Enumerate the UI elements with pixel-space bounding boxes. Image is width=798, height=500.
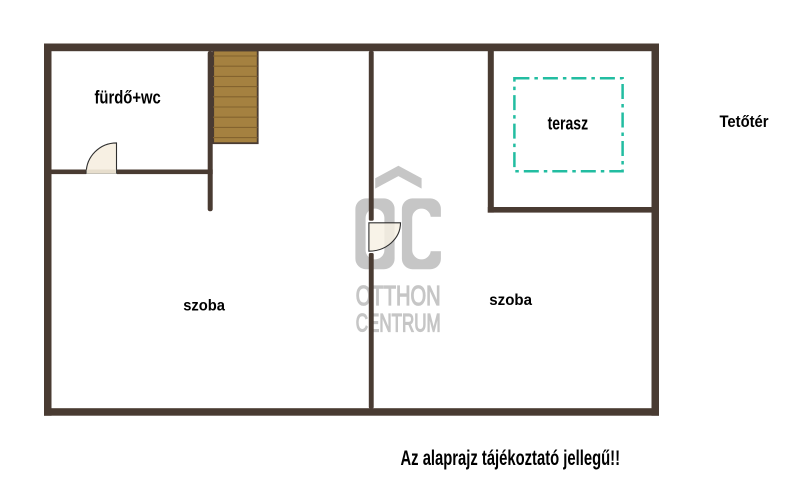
svg-text:Az alaprajz tájékoztató jelleg: Az alaprajz tájékoztató jellegű!! — [401, 447, 621, 470]
svg-text:OTTHON: OTTHON — [356, 280, 441, 311]
svg-text:terasz: terasz — [548, 114, 589, 134]
svg-text:fürdő+wc: fürdő+wc — [95, 88, 161, 108]
svg-text:Tetőtér: Tetőtér — [720, 113, 770, 131]
svg-text:szoba: szoba — [489, 292, 532, 309]
svg-text:szoba: szoba — [183, 298, 225, 315]
svg-text:CENTRUM: CENTRUM — [356, 311, 441, 338]
